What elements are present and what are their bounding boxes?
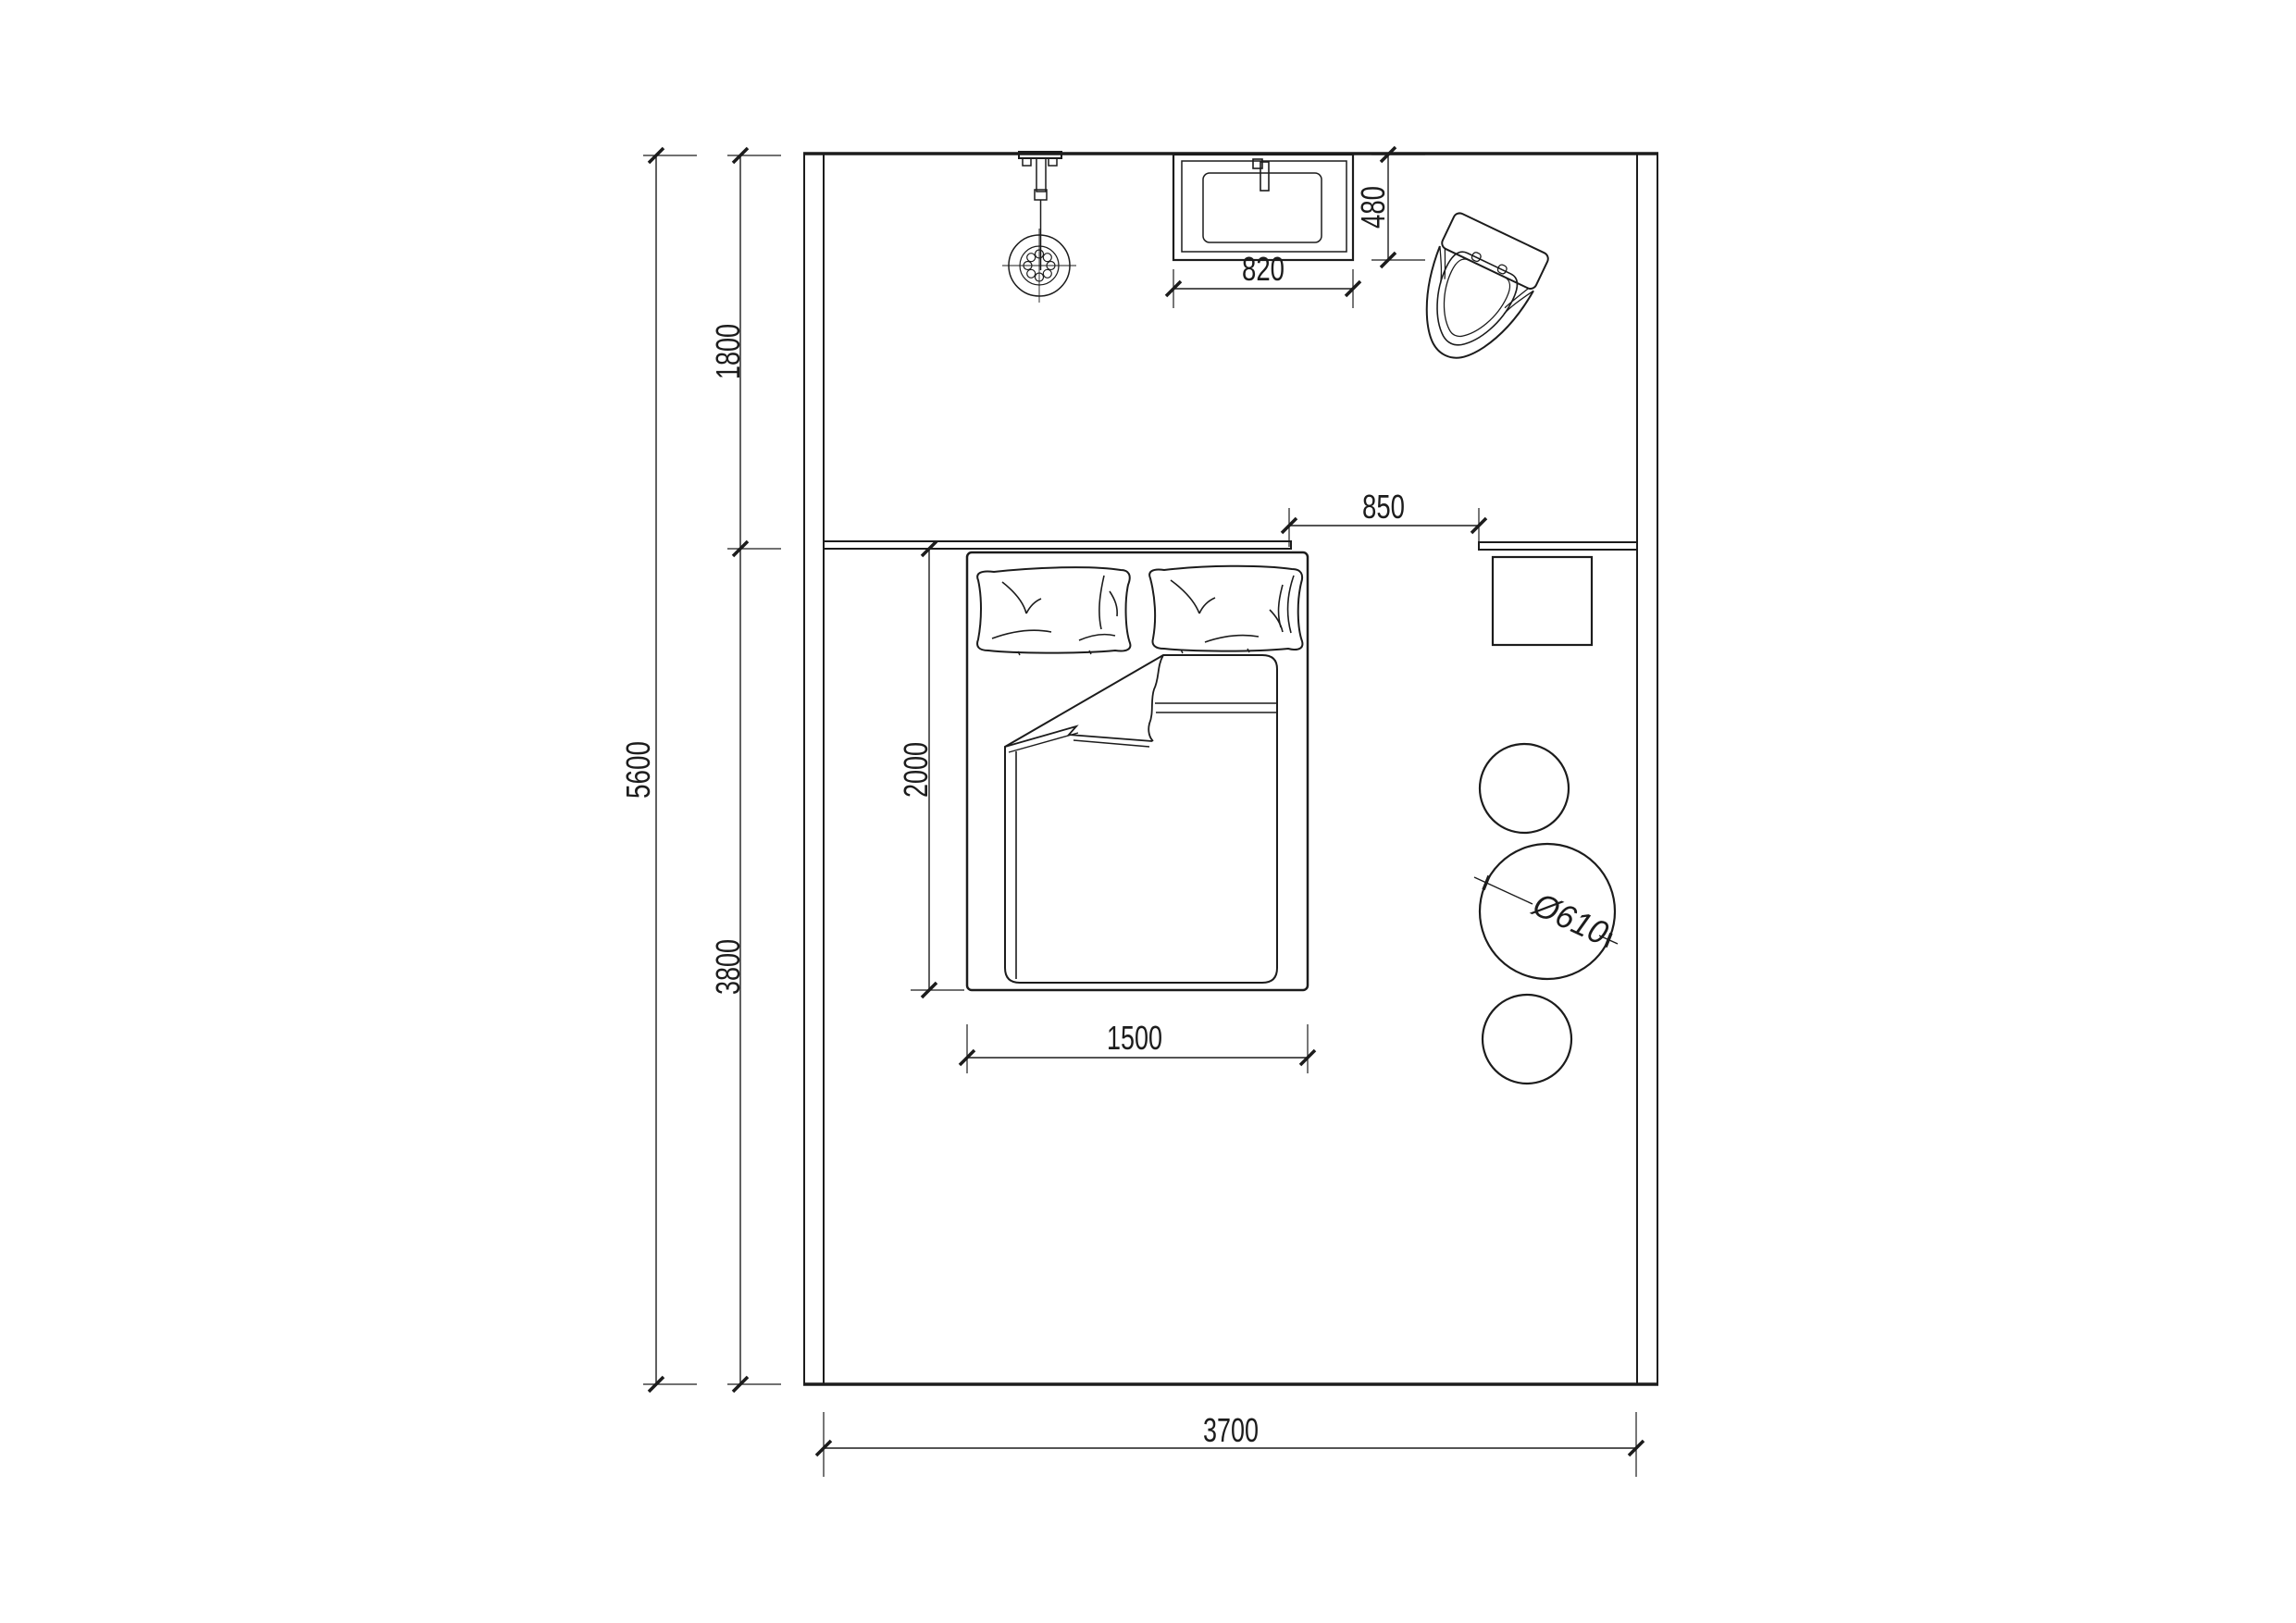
wash-basin [1173,155,1353,260]
double-bed [967,552,1308,990]
dim-label-2000: 2000 [897,742,935,798]
counter-left-segment [824,541,1291,549]
shower-bracket-tab-right [1049,158,1057,166]
dim-label-5600: 5600 [619,741,657,799]
shower-handle [1036,158,1046,192]
dim-room-width: 3700 [816,1411,1644,1477]
dim-label-1500: 1500 [1107,1019,1162,1057]
toilet-bowl-outer [1398,246,1533,378]
dim-label-480: 480 [1354,186,1392,229]
dim-bed-width: 1500 [960,1019,1315,1073]
dim-zone-heights: 1800 3800 [709,148,781,1392]
basin-outer [1173,155,1353,260]
stool-bottom [1483,995,1571,1084]
dim-label-850: 850 [1362,488,1405,526]
duvet-outline [1005,655,1277,983]
duvet-fold-zigzag-1 [1005,726,1152,747]
pillow-right [1149,566,1302,651]
dimensions: 5600 1800 3800 3700 [619,147,1644,1477]
duvet-fold-edge-wavy [1148,655,1163,741]
dim-room-height-total: 5600 [619,148,697,1392]
side-table [1493,557,1592,645]
bed-frame [967,552,1308,990]
dim-passage: 850 [1282,488,1486,547]
shower-fixture [1002,152,1076,303]
page: { "drawing": { "type": "bedroom floor pl… [0,0,2296,1623]
duvet [1005,655,1277,983]
basin-bowl [1203,173,1322,242]
dim-bed-length: 2000 [897,541,964,997]
duvet-fold-zigzag-3 [1074,740,1149,747]
dim-label-610: Ø610 [1527,885,1614,952]
floor-plan-drawing: 5600 1800 3800 3700 [0,0,2296,1623]
stool-top [1480,744,1569,833]
pillow-left [977,567,1130,653]
shower-bracket-tab-left [1023,158,1031,166]
counter-right-segment [1479,542,1636,550]
right-furniture [1480,557,1615,1084]
dim-basin-depth: 480 [1354,147,1425,267]
dim-label-3700: 3700 [1203,1411,1259,1449]
dim-table-diameter: Ø610 [1474,876,1618,953]
dim-label-1800: 1800 [709,324,747,379]
toilet-tank [1440,211,1550,291]
dim-label-820: 820 [1242,250,1285,288]
dim-label-3800: 3800 [709,939,747,995]
toilet [1398,211,1550,378]
dim-basin-width: 820 [1166,250,1360,308]
